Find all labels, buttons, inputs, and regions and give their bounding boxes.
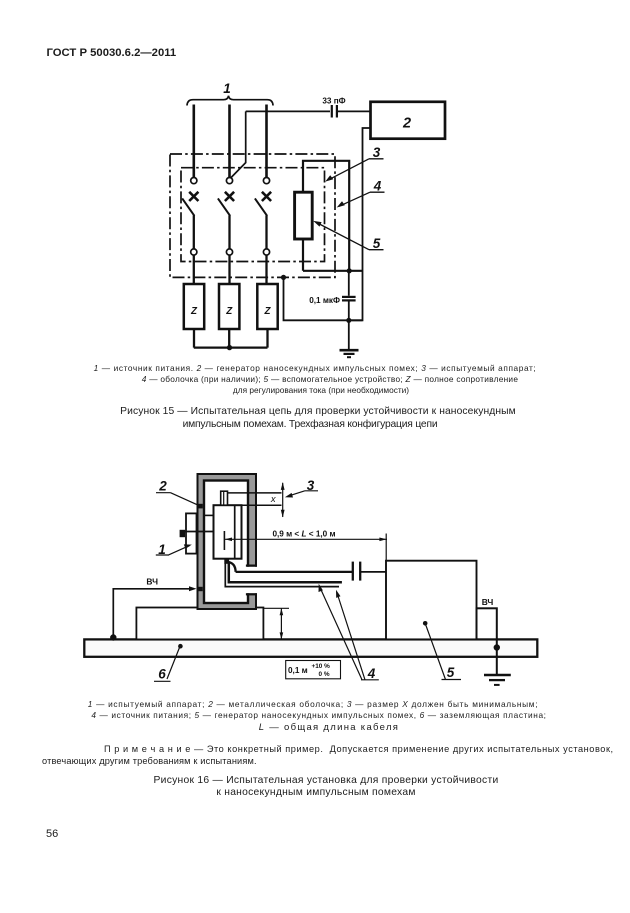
svg-text:0,9 м < L < 1,0 м: 0,9 м < L < 1,0 м bbox=[272, 530, 335, 539]
svg-text:2: 2 bbox=[158, 479, 167, 494]
svg-text:1: 1 bbox=[223, 81, 231, 96]
svg-text:0,1 мкФ: 0,1 мкФ bbox=[309, 296, 340, 305]
svg-text:Z: Z bbox=[190, 306, 198, 317]
svg-text:4: 4 bbox=[373, 179, 382, 194]
svg-text:ВЧ: ВЧ bbox=[482, 597, 494, 607]
svg-text:Z: Z bbox=[264, 306, 272, 317]
svg-text:2: 2 bbox=[402, 116, 411, 132]
svg-text:Z: Z bbox=[225, 306, 233, 317]
svg-text:5: 5 bbox=[373, 236, 381, 251]
svg-text:+10 %: +10 % bbox=[312, 663, 331, 670]
svg-text:0,1 м: 0,1 м bbox=[288, 666, 308, 675]
svg-text:0 %: 0 % bbox=[319, 671, 330, 678]
svg-text:4: 4 bbox=[367, 666, 376, 681]
svg-text:33 пФ: 33 пФ bbox=[322, 97, 345, 106]
svg-text:x: x bbox=[270, 494, 277, 505]
svg-text:ВЧ: ВЧ bbox=[146, 577, 158, 587]
svg-text:6: 6 bbox=[158, 667, 166, 682]
svg-text:5: 5 bbox=[447, 665, 455, 680]
svg-text:3: 3 bbox=[373, 145, 381, 160]
